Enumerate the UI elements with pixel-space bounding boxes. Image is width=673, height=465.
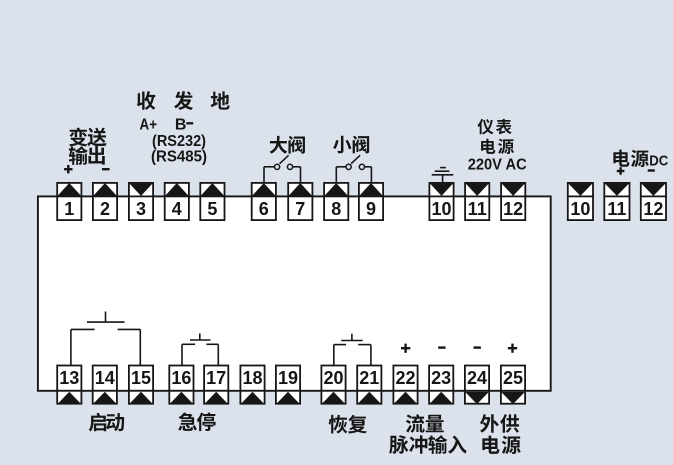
svg-text:8: 8: [331, 199, 341, 219]
svg-text:10: 10: [570, 199, 590, 219]
svg-text:220V AC: 220V AC: [468, 157, 527, 174]
svg-text:6: 6: [259, 199, 269, 219]
svg-text:7: 7: [295, 199, 305, 219]
svg-text:22: 22: [395, 368, 415, 388]
svg-text:14: 14: [95, 368, 115, 388]
svg-text:13: 13: [59, 368, 79, 388]
svg-text:17: 17: [206, 368, 226, 388]
svg-text:9: 9: [366, 199, 376, 219]
svg-text:1: 1: [64, 199, 74, 219]
svg-text:24: 24: [467, 368, 487, 388]
svg-text:DC: DC: [649, 152, 668, 169]
svg-text:25: 25: [503, 368, 523, 388]
svg-text:11: 11: [607, 199, 626, 219]
svg-text:2: 2: [100, 199, 110, 219]
svg-text:5: 5: [207, 199, 217, 219]
svg-text:B: B: [175, 116, 187, 133]
svg-text:(RS485): (RS485): [151, 149, 207, 166]
svg-text:23: 23: [431, 368, 451, 388]
svg-text:10: 10: [431, 199, 451, 219]
svg-text:11: 11: [468, 199, 487, 219]
svg-text:15: 15: [131, 368, 151, 388]
svg-text:A+: A+: [140, 116, 158, 133]
svg-text:18: 18: [242, 368, 262, 388]
svg-text:(RS232): (RS232): [152, 133, 206, 150]
svg-text:12: 12: [643, 199, 663, 219]
svg-text:12: 12: [503, 199, 523, 219]
svg-text:3: 3: [136, 199, 146, 219]
svg-text:21: 21: [359, 368, 379, 388]
svg-text:20: 20: [323, 368, 343, 388]
svg-text:19: 19: [278, 368, 298, 388]
svg-text:16: 16: [171, 368, 191, 388]
svg-text:4: 4: [172, 199, 182, 219]
